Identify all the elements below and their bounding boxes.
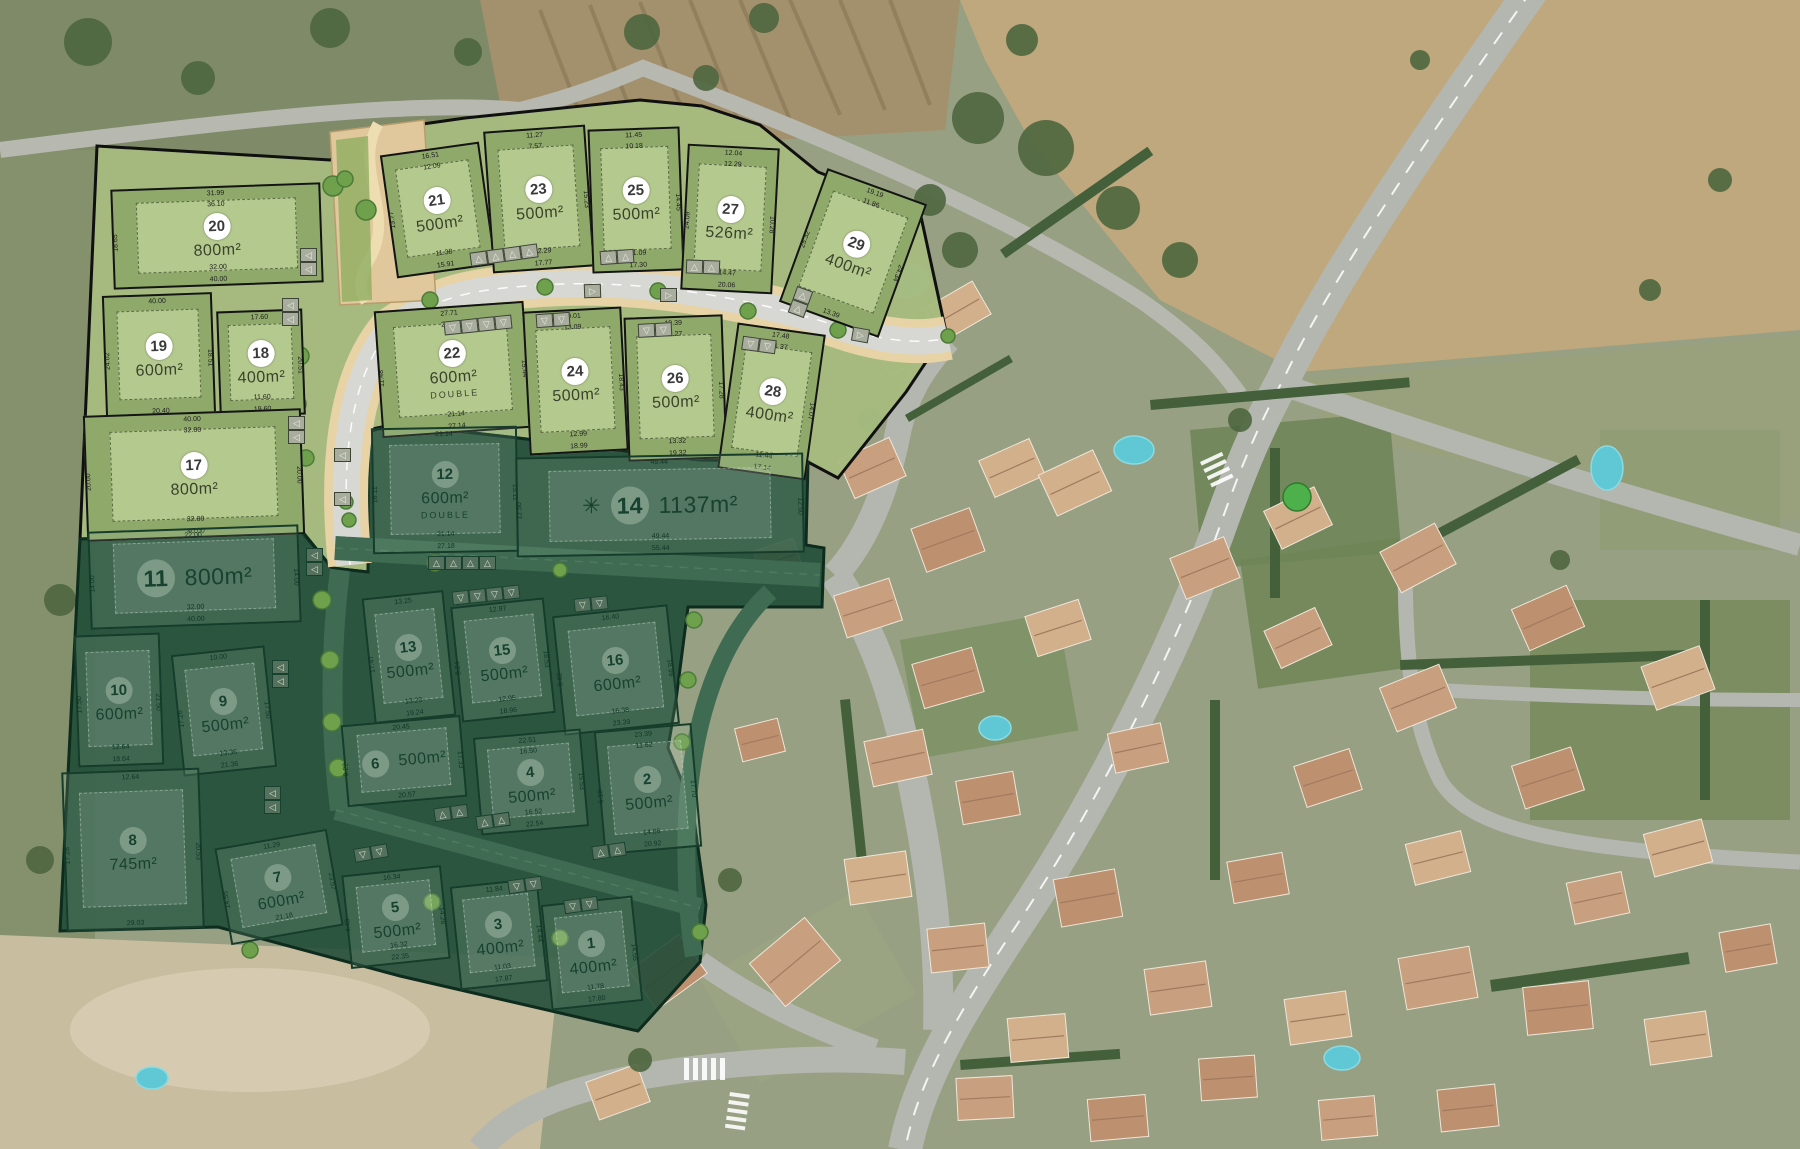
dimension-label: 8.62 — [556, 672, 564, 686]
lot-16[interactable]: 16600m²16.408.6218.9916.3823.39 — [552, 604, 680, 735]
lot-area-label: 600m² — [135, 361, 183, 381]
dimension-label: 18.51 — [207, 349, 215, 367]
lot-area-label: 526m² — [705, 223, 754, 243]
dimension-label: 16.11 — [372, 486, 379, 503]
lot-number-badge: 21 — [421, 185, 451, 215]
plan-tree — [342, 513, 356, 527]
dimension-label: 8.24 — [454, 661, 462, 675]
lot-14[interactable]: ✳141137m²49.4412.5012.5049.4455.44 — [515, 452, 805, 557]
plan-tree — [740, 303, 756, 319]
parking-marker: ◁◁ — [288, 416, 305, 444]
lot-number-badge: 9 — [208, 686, 238, 716]
lot-7[interactable]: 7600m²11.2914.5521.1823.57 — [214, 829, 343, 945]
lot-label: 19600m² — [104, 294, 214, 418]
lot-number-badge: 26 — [661, 364, 689, 392]
lot-3[interactable]: 3400m²11.8414.4411.0317.87 — [450, 878, 548, 991]
driveway-arrow-icon: ◁ — [334, 448, 351, 462]
driveway-arrow-icon: ◁ — [272, 660, 289, 674]
driveway-arrow-icon: △ — [520, 243, 539, 259]
lot-24[interactable]: 24500m²19.0113.0918.4312.9918.99 — [522, 307, 628, 456]
plan-tree — [242, 942, 258, 958]
dimension-label: 20.00 — [295, 466, 303, 484]
lot-area-label: 500m² — [652, 393, 700, 413]
lot-area-label: 500m² — [386, 660, 435, 683]
lot-10[interactable]: 10600m²17.5021.5012.6418.64 — [74, 633, 165, 768]
driveway-arrow-icon: ▽ — [468, 588, 486, 604]
driveway-arrow-icon: ◁ — [300, 248, 317, 262]
lot-number-badge: 7 — [262, 862, 293, 893]
lot-11[interactable]: 11800m²22.0014.0014.0032.0040.00 — [87, 524, 301, 629]
dimension-label: 18.65 — [112, 234, 120, 252]
parking-marker: ▷ — [660, 288, 677, 302]
dimension-label: 18.99 — [666, 659, 675, 677]
dimension-label: 6.10 — [597, 790, 605, 804]
driveway-arrow-icon: ◁ — [288, 416, 305, 430]
parking-marker: ◁◁ — [300, 248, 317, 276]
lot-15[interactable]: 15500m²12.978.2418.5312.9518.96 — [450, 597, 556, 722]
lot-area-label: 500m² — [480, 663, 529, 686]
parking-marker: ◁◁ — [306, 548, 323, 576]
lot-13[interactable]: 13500m²13.2517.4713.2319.24 — [362, 590, 457, 724]
lot-5[interactable]: 5500m²16.344.4814.2616.3222.35 — [341, 865, 450, 969]
lot-area-label: 500m² — [415, 212, 465, 236]
lot-number-badge: 10 — [105, 676, 133, 704]
parking-marker: △△ — [600, 249, 635, 265]
parking-marker: ▽▽ — [536, 312, 571, 328]
parking-marker: ▷ — [584, 284, 601, 299]
driveway-arrow-icon: ▽ — [758, 338, 777, 354]
driveway-arrow-icon: ▽ — [741, 336, 760, 352]
driveway-arrow-icon: ◁ — [306, 562, 323, 576]
dimension-label: 17.50 — [76, 696, 84, 714]
lot-area-label: 600m² — [593, 673, 642, 696]
driveway-arrow-icon: △ — [469, 250, 488, 266]
driveway-arrow-icon: ▽ — [524, 876, 543, 892]
double-lot-label: DOUBLE — [430, 387, 480, 400]
dimension-label: 12.50 — [797, 497, 804, 515]
parking-marker: ◁◁ — [272, 660, 289, 688]
lot-2[interactable]: 2500m²23.3911.626.1017.7014.0620.92 — [594, 723, 702, 855]
driveway-arrow-icon: △ — [462, 556, 479, 570]
dimension-label: 20.00 — [85, 473, 93, 491]
dimension-label: 20.53 — [195, 842, 203, 860]
lot-number-badge: 20 — [203, 212, 231, 240]
dimension-label: 14.45 — [675, 193, 683, 211]
driveway-arrow-icon: ▽ — [536, 313, 554, 328]
dimension-label: 17.28 — [718, 381, 726, 399]
lot-number-badge: 4 — [516, 757, 545, 786]
lot-12[interactable]: 12600m²DOUBLE21.1416.1115.1121.1427.18 — [371, 426, 519, 555]
lot-label: 8745m² — [63, 770, 202, 931]
lot-20[interactable]: 20800m²31.9936.1018.6532.0040.00 — [110, 182, 323, 289]
dimension-label: 4.48 — [344, 918, 352, 932]
plan-tree — [537, 279, 553, 295]
driveway-arrow-icon: ▽ — [477, 316, 495, 332]
lot-number-badge: 6 — [361, 749, 390, 778]
lot-area-label: 500m² — [625, 792, 674, 814]
parking-marker: ▽▽ — [638, 322, 673, 338]
lot-number-badge: 16 — [600, 645, 630, 675]
lot-area-label: 500m² — [508, 785, 557, 807]
driveway-arrow-icon: ▷ — [851, 327, 870, 344]
lot-number-badge: 24 — [561, 357, 589, 385]
plan-tree — [356, 200, 376, 220]
lot-1[interactable]: 1400m²11.7714.5511.7817.80 — [541, 895, 644, 1010]
lot-number-badge: 8 — [119, 826, 147, 854]
lot-area-label: 745m² — [109, 855, 157, 875]
lot-number-badge: 5 — [380, 892, 410, 922]
dimension-label: 12.50 — [516, 502, 523, 520]
dimension-label: 18.53 — [542, 650, 551, 668]
plan-tree — [553, 563, 567, 577]
lot-9[interactable]: 9500m²10.0017.2617.5013.3621.36 — [171, 645, 277, 776]
parking-marker: △△△△ — [428, 556, 496, 570]
lot-6[interactable]: 6500m²20.459.2217.3320.57 — [341, 715, 468, 807]
lot-number-badge: 28 — [758, 376, 788, 406]
lot-area-label: 500m² — [552, 385, 601, 405]
dimension-label: 18.43 — [617, 373, 625, 391]
dimension-label: 17.33 — [456, 751, 465, 769]
driveway-arrow-icon: △ — [686, 259, 703, 274]
driveway-arrow-icon: △ — [703, 260, 720, 275]
driveway-arrow-icon: ▽ — [590, 595, 608, 611]
lot-area-label: 800m² — [170, 480, 218, 500]
lot-area-label: 400m² — [476, 937, 525, 960]
plan-tree — [422, 292, 438, 308]
plan-tree — [680, 672, 696, 688]
driveway-arrow-icon: ▽ — [507, 878, 526, 894]
dimension-label: 14.00 — [89, 575, 97, 593]
driveway-arrow-icon: ▽ — [460, 318, 478, 334]
driveway-arrow-icon: △ — [617, 249, 635, 264]
driveway-arrow-icon: △ — [433, 806, 452, 822]
dimension-label: 14.00 — [292, 568, 300, 586]
plan-tree — [686, 612, 702, 628]
dimension-label: 14.26 — [438, 907, 447, 925]
driveway-arrow-icon: ▽ — [485, 586, 503, 602]
dimension-label: 24.09 — [684, 211, 692, 229]
lot-17[interactable]: 17800m²40.0032.0020.0032.0040.0020.00 — [83, 408, 305, 542]
plan-tree — [321, 651, 339, 669]
driveway-arrow-icon: ▽ — [502, 584, 520, 600]
driveway-arrow-icon: ▽ — [553, 312, 571, 327]
driveway-arrow-icon: ◁ — [288, 430, 305, 444]
driveway-arrow-icon: ◁ — [306, 548, 323, 562]
lot-number-badge: 23 — [524, 175, 553, 204]
driveway-arrow-icon: ▽ — [451, 590, 469, 606]
parking-marker: ▷ — [851, 327, 870, 344]
lot-number-badge: 19 — [145, 332, 173, 360]
dimension-label: 21.50 — [155, 693, 163, 711]
driveway-arrow-icon: △ — [503, 246, 522, 262]
driveway-arrow-icon: ▷ — [584, 284, 601, 299]
lot-number-badge: 12 — [431, 460, 458, 487]
driveway-arrow-icon: ▷ — [660, 288, 677, 302]
lot-19[interactable]: 19600m²40.0024.0220.4018.51 — [102, 292, 216, 420]
lot-area-label: 800m² — [193, 241, 241, 261]
dimension-label: 17.70 — [689, 780, 698, 798]
dimension-label: 24.02 — [104, 352, 112, 370]
parking-marker: ◁◁ — [282, 298, 299, 326]
dimension-label: 10.28 — [768, 216, 776, 234]
lot-area-label: 400m² — [237, 368, 285, 388]
dimension-label: 14.55 — [630, 943, 639, 961]
parking-marker: ◁ — [334, 492, 351, 506]
driveway-arrow-icon: △ — [445, 556, 462, 570]
parking-marker: △△ — [686, 259, 720, 274]
dimension-label: 11.48 — [378, 369, 386, 386]
lot-number-badge: 1 — [576, 928, 606, 958]
driveway-arrow-icon: △ — [591, 844, 610, 860]
lot-number-badge: 18 — [247, 339, 275, 367]
lot-number-badge: 14 — [610, 486, 649, 525]
parking-marker: ◁◁ — [264, 786, 281, 814]
driveway-arrow-icon: ◁ — [264, 800, 281, 814]
dimension-label: 20.51 — [297, 356, 305, 374]
driveway-arrow-icon: ▽ — [580, 896, 599, 912]
lot-number-badge: 13 — [393, 632, 423, 662]
driveway-arrow-icon: ▽ — [638, 323, 656, 338]
driveway-arrow-icon: ▽ — [655, 322, 673, 337]
driveway-arrow-icon: ▽ — [494, 314, 512, 330]
driveway-arrow-icon: ◁ — [334, 492, 351, 506]
lot-8[interactable]: 8745m²12.6417.2820.5329.03 — [61, 768, 204, 933]
lot-area-label: 600m² — [429, 367, 478, 388]
driveway-arrow-icon: ◁ — [264, 786, 281, 800]
driveway-arrow-icon: ◁ — [300, 262, 317, 276]
driveway-arrow-icon: △ — [475, 814, 494, 830]
driveway-arrow-icon: ◁ — [272, 674, 289, 688]
lot-number-badge: 17 — [180, 451, 208, 479]
plan-tree — [323, 713, 341, 731]
parking-marker: ◁ — [334, 448, 351, 462]
driveway-arrow-icon: ▽ — [573, 597, 591, 613]
dimension-label: 9.22 — [342, 762, 350, 776]
plan-tree — [692, 924, 708, 940]
lot-area-label: 1137m² — [658, 490, 738, 518]
lot-area-label: 500m² — [201, 714, 250, 737]
plan-tree — [313, 591, 331, 609]
lot-area-label: 600m² — [95, 705, 143, 725]
lot-area-label: 500m² — [398, 748, 447, 770]
driveway-arrow-icon: △ — [479, 556, 496, 570]
tree-preservation-icon: ✳ — [582, 493, 601, 519]
double-lot-label: DOUBLE — [421, 509, 470, 520]
driveway-arrow-icon: △ — [608, 842, 627, 858]
dimension-label: 17.28 — [64, 847, 72, 865]
lot-number-badge: 15 — [487, 635, 517, 665]
driveway-arrow-icon: △ — [486, 248, 505, 264]
lot-area-label: 800m² — [184, 561, 253, 590]
dimension-label: 15.53 — [577, 772, 586, 790]
lot-area-label: 600m² — [421, 489, 469, 508]
plan-tree — [337, 171, 353, 187]
lot-number-badge: 27 — [716, 195, 744, 223]
lot-area-label: 500m² — [516, 203, 565, 224]
driveway-arrow-icon: △ — [492, 812, 511, 828]
driveway-arrow-icon: ▽ — [443, 320, 461, 336]
driveway-arrow-icon: △ — [450, 804, 469, 820]
lot-area-label: 400m² — [745, 404, 795, 428]
plan-tree — [941, 329, 955, 343]
dimension-label: 17.50 — [263, 701, 272, 719]
driveway-arrow-icon: △ — [600, 250, 618, 265]
driveway-arrow-icon: ◁ — [282, 298, 299, 312]
driveway-arrow-icon: ▽ — [370, 843, 389, 860]
lot-number-badge: 3 — [483, 909, 513, 939]
lot-number-badge: 2 — [633, 764, 662, 793]
lot-area-label: 400m² — [569, 956, 618, 979]
lot-number-badge: 25 — [622, 176, 650, 204]
driveway-arrow-icon: △ — [428, 556, 445, 570]
driveway-arrow-icon: ▽ — [563, 898, 582, 914]
lot-number-badge: 22 — [437, 339, 466, 368]
subdivision-site-plan-map: 20800m²31.9936.1018.6532.0040.0019600m²4… — [0, 0, 1800, 1149]
lot-area-label: 500m² — [612, 205, 660, 225]
lot-number-badge: 11 — [136, 559, 175, 598]
driveway-arrow-icon: ◁ — [282, 312, 299, 326]
